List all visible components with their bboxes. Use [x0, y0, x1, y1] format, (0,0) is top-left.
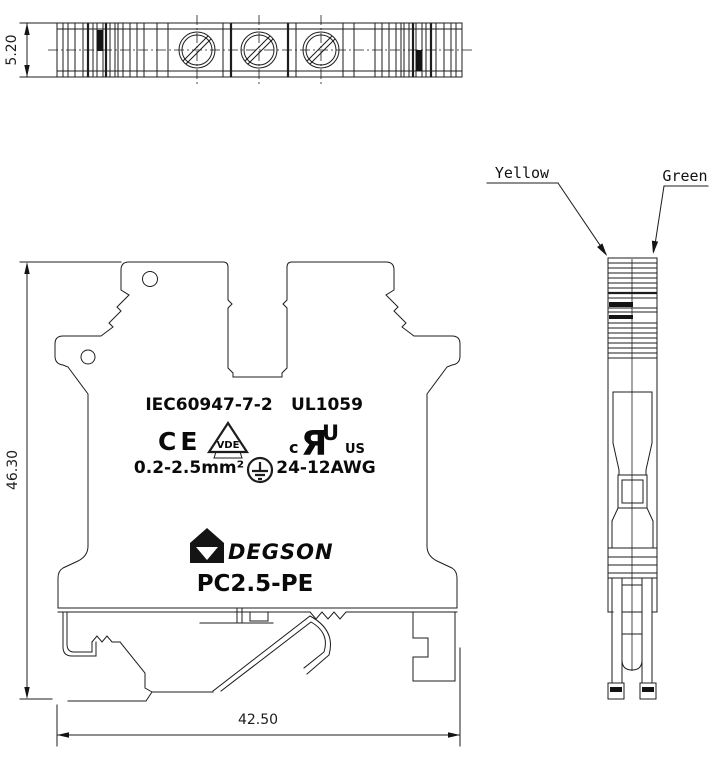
leader-line: [654, 186, 708, 251]
ul-standard-text: UL1059: [291, 395, 363, 415]
leader-green: Green: [650, 167, 708, 255]
ground-symbol-icon: [248, 458, 272, 482]
product-marking: IEC60947-7-2 UL1059 CE VDE c Я U US 0.2-…: [134, 395, 376, 597]
dimension-height-value: 46.30: [5, 450, 21, 490]
front-view: IEC60947-7-2 UL1059 CE VDE c Я U US 0.2-…: [55, 262, 460, 701]
top-view-latch-mark-right: [416, 50, 422, 71]
svg-text:VDE: VDE: [217, 440, 240, 451]
leader-line: [487, 183, 606, 254]
arrowhead-icon: [24, 65, 29, 77]
svg-text:U: U: [322, 421, 339, 445]
rail-hook-left: [63, 613, 96, 656]
stripe-dark-band: [609, 315, 633, 319]
side-window-inner: [622, 480, 643, 503]
vde-triangle-icon: VDE: [209, 423, 247, 458]
pilot-hole-shoulder: [81, 350, 95, 364]
arrowhead-icon: [24, 262, 29, 274]
leader-yellow: Yellow: [487, 164, 610, 258]
iec-standard-text: IEC60947-7-2: [145, 395, 272, 415]
dimension-width-value: 42.50: [238, 712, 278, 728]
stripe-dark-band: [609, 302, 633, 307]
side-band-lines: [608, 548, 657, 578]
svg-text:US: US: [345, 442, 365, 457]
foot-baseline: [68, 692, 213, 701]
top-view-latch-mark-left: [97, 30, 103, 51]
hook-serration: [92, 636, 152, 692]
clip-tab: [250, 612, 268, 621]
side-foot-mark: [610, 687, 622, 692]
model-number-text: PC2.5-PE: [197, 571, 314, 597]
dimension-lines: [20, 262, 121, 699]
degson-logo-icon: [190, 528, 224, 563]
wire-range-mm-text: 0.2-2.5mm²: [134, 458, 244, 478]
dimension-thickness-value: 5.20: [4, 34, 20, 65]
arrowhead-icon: [448, 732, 460, 737]
stripe-lines: [608, 263, 657, 358]
arrowhead-icon: [24, 23, 29, 35]
side-clamp-body: [612, 392, 653, 548]
ce-mark-icon: CE: [158, 427, 201, 456]
wire-range-awg-text: 24-12AWG: [276, 458, 375, 478]
side-foot-mark: [642, 687, 654, 692]
arrowhead-icon: [597, 243, 610, 257]
rail-ledge-right: [413, 613, 455, 681]
brand-name-text: DEGSON: [228, 540, 334, 564]
arrowhead-icon: [24, 687, 29, 699]
front-center-channel: [223, 262, 292, 377]
terminal-block-technical-drawing: 5.20 IEC60947-7-2 UL1059 CE: [0, 0, 720, 760]
side-view: [608, 258, 657, 699]
pilot-hole-top: [143, 272, 158, 287]
spring-clip: [213, 616, 330, 691]
arrowhead-icon: [650, 241, 658, 255]
svg-text:c: c: [289, 438, 298, 457]
arrowhead-icon: [57, 732, 69, 737]
side-shell-outline: [608, 258, 657, 612]
foot-second-line: [58, 612, 457, 619]
green-label: Green: [662, 167, 707, 185]
drawing-svg: 5.20 IEC60947-7-2 UL1059 CE: [0, 0, 720, 760]
yellow-label: Yellow: [495, 164, 550, 182]
top-view: [48, 15, 472, 85]
din-rail-foot: [58, 608, 457, 701]
